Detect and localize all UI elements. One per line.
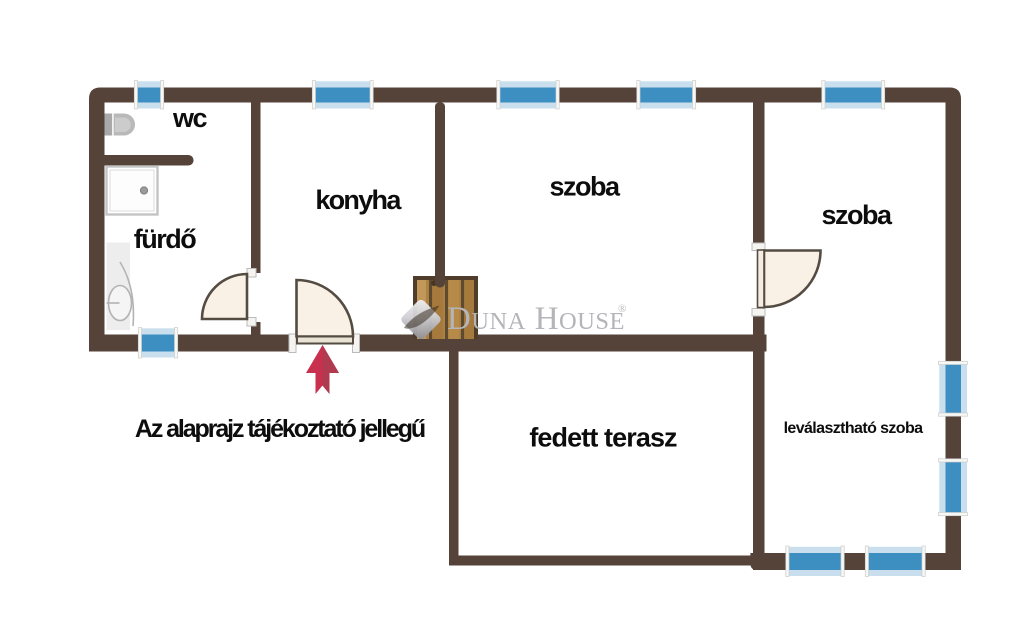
svg-text:fedett terasz: fedett terasz — [529, 423, 677, 453]
svg-text:®: ® — [618, 303, 626, 315]
svg-text:wc: wc — [172, 103, 208, 133]
svg-text:Az alaprajz tájékoztató jelleg: Az alaprajz tájékoztató jellegű — [135, 415, 425, 443]
svg-text:leválasztható szoba: leválasztható szoba — [784, 420, 924, 437]
svg-text:fürdő: fürdő — [134, 224, 196, 254]
svg-text:konyha: konyha — [315, 185, 402, 215]
svg-text:szoba: szoba — [821, 200, 893, 230]
svg-text:szoba: szoba — [549, 172, 621, 202]
